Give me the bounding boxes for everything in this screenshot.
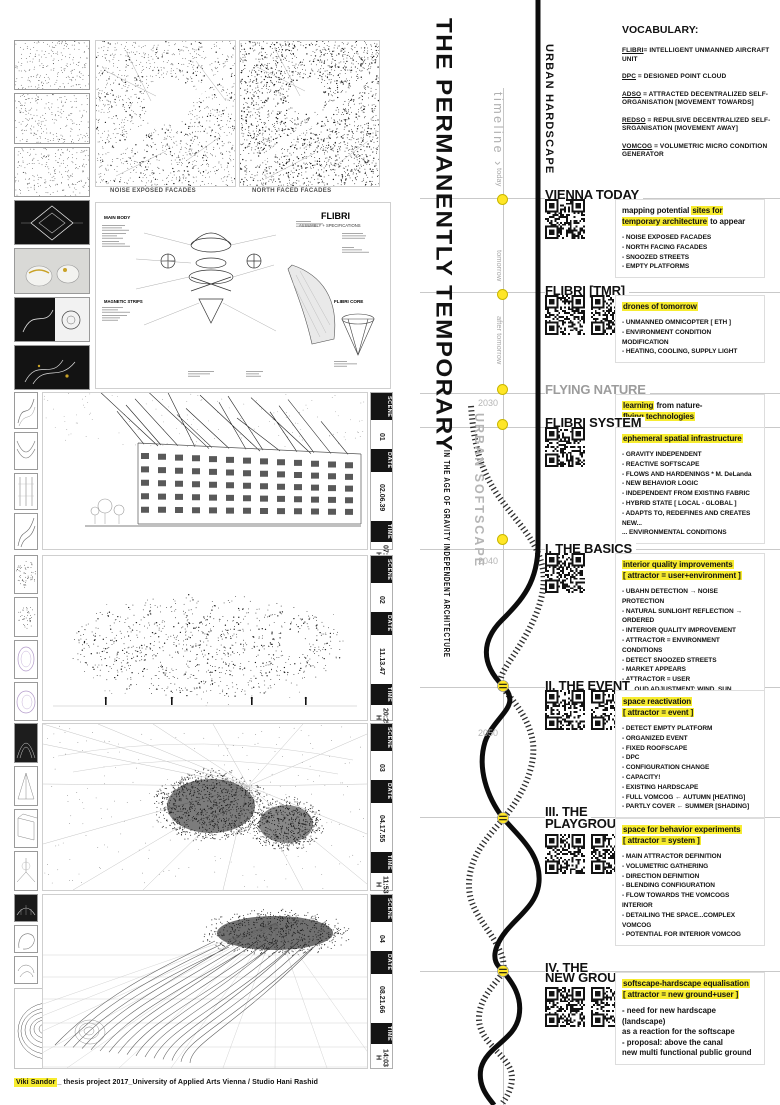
- section-intro-line: softscape-hardscape equalisation: [622, 978, 758, 989]
- urban-softscape-label: URBAN SOFTSCAPE: [472, 413, 486, 568]
- bullet-item: - ADAPTS TO, REDEFINES AND CREATES NEW..…: [622, 509, 758, 529]
- highlighted-text: [ attractor = new ground+user ]: [622, 990, 739, 999]
- scene-03-strip: SCENE 03 DATE 04.17.55 TIME 11:53 H: [370, 723, 393, 891]
- bullet-item: - NORTH FACING FACADES: [622, 243, 758, 253]
- vocabulary-term: DPC: [622, 73, 636, 80]
- vocabulary-term: VOMCOG: [622, 143, 652, 150]
- bullet-item: - BLENDING CONFIGURATION: [622, 881, 758, 891]
- thumbnail-greenhouse-photo: [14, 723, 38, 763]
- bullet-item: - REACTIVE SOFTSCAPE: [622, 460, 758, 470]
- section-text-box: space reactivation[ attractor = event ]-…: [615, 690, 765, 818]
- bullet-item: - EXISTING HARDSCAPE: [622, 783, 758, 793]
- scene-02-image: [43, 556, 367, 720]
- highlighted-text: [ attractor = system ]: [622, 836, 701, 845]
- bullet-item: - MAIN ATTRACTOR DEFINITION: [622, 852, 758, 862]
- section-flying-nature: FLYING NATURElearning from nature-flying…: [545, 381, 780, 399]
- bullet-item: - GRAVITY INDEPENDENT: [622, 450, 758, 460]
- section-paragraph: - need for new hardscape (landscape)as a…: [622, 1006, 758, 1059]
- year-2040: 2040: [466, 556, 498, 566]
- highlighted-text: ephemeral spatial infrastructure: [622, 434, 743, 443]
- time-label: TIME: [371, 852, 392, 873]
- bullet-item: ... ENVIRONMENTAL CONDITIONS: [622, 528, 758, 538]
- map-texture-image: [240, 41, 379, 186]
- time-value: 14:03 H: [375, 1044, 389, 1068]
- bullet-item: - MARKET APPEARS: [622, 665, 758, 675]
- section-qr-codes: [545, 427, 585, 467]
- vocabulary-definition: = ATTRACTED DECENTRALIZED SELF-ORGANISAT…: [622, 91, 768, 107]
- bullet-item: - INDEPENDENT FROM EXISTING FABRIC: [622, 489, 758, 499]
- highlighted-text: learning: [622, 401, 654, 410]
- vocabulary-entry: DPC = DESIGNED POINT CLOUD: [622, 73, 775, 82]
- bullet-item: - FLOW TOWARDS THE VOMCOGS INTERIOR: [622, 891, 758, 911]
- thumbnail-sketch: [14, 513, 38, 550]
- scene-04-thumbnails: [14, 894, 38, 984]
- bullet-item: - UNMANNED OMNICOPTER [ ETH ]: [622, 318, 758, 328]
- vocabulary-entry: ADSO = ATTRACTED DECENTRALIZED SELF-ORGA…: [622, 91, 775, 108]
- bullet-item: - CONFIGURATION CHANGE: [622, 763, 758, 773]
- bullet-item: - HYBRID STATE [ LOCAL - GLOBAL ]: [622, 499, 758, 509]
- section-text-box: space for behavior experiments[ attracto…: [615, 818, 765, 946]
- people-silhouettes: [105, 697, 307, 705]
- thumbnail-drone-render: [14, 200, 90, 245]
- section-intro-line: interior quality improvements: [622, 559, 758, 570]
- section-the-new-ground: IV. THENEW GROUNDsoftscape-hardscape equ…: [545, 959, 780, 977]
- thumbnail-sketch: [14, 432, 38, 469]
- bullet-item: - DIRECTION DEFINITION: [622, 872, 758, 882]
- section-text-box: mapping potential sites for temporary ar…: [615, 199, 765, 278]
- vocabulary-entries: FLIBRI= INTELLIGENT UNMANNED AIRCRAFT UN…: [622, 47, 775, 160]
- vocabulary-entry: VOMCOG = VOLUMETRIC MICRO CONDITION GENE…: [622, 143, 775, 160]
- section-bullet-list: - UNMANNED OMNICOPTER [ ETH ]- ENVIRONME…: [622, 318, 758, 357]
- credit-line: Viki Sandor_ thesis project 2017_Univers…: [14, 1079, 318, 1086]
- scene-01-image: [43, 393, 367, 549]
- scene-number: 02: [378, 583, 385, 612]
- timeline-axis-line: [503, 88, 504, 1105]
- thumbnail-sketch: [14, 473, 38, 510]
- thumbnail-bridge-photo: [14, 894, 38, 922]
- bullet-item: - NEW BEHAVIOR LOGIC: [622, 479, 758, 489]
- timeline-dot-2030: [497, 419, 508, 430]
- highlighted-text: [ attractor = event ]: [622, 708, 694, 717]
- map-label-right: NORTH FACED FACADES: [252, 188, 331, 194]
- bullet-item: - INTERIOR QUALITY IMPROVEMENT: [622, 626, 758, 636]
- timeline-dot-basics: [497, 534, 508, 545]
- bullet-item: - NATURAL SUNLIGHT REFLECTION → ORDERED: [622, 607, 758, 627]
- bullet-item: - HEATING, COOLING, SUPPLY LIGHT: [622, 347, 758, 357]
- scene-04-image: [43, 895, 367, 1068]
- paragraph-line: - proposal: above the canal: [622, 1038, 758, 1049]
- bullet-item: - DETECT SNOOZED STREETS: [622, 656, 758, 666]
- bullet-item: - ATTRACTOR = ENVIRONMENT CONDITIONS: [622, 636, 758, 656]
- date-label: DATE: [371, 951, 392, 974]
- scene-02-thumbnails: [14, 555, 38, 721]
- section-text-box: softscape-hardscape equalisation[ attrac…: [615, 972, 765, 1065]
- vocabulary-definition: = INTELLIGENT UNMANNED AIRCRAFT UNIT: [622, 47, 769, 63]
- thumbnail-map-sketch: [14, 93, 90, 143]
- paragraph-line: as a reaction for the softscape: [622, 1027, 758, 1038]
- section-vienna-today: VIENNA TODAYmapping potential sites for …: [545, 186, 780, 204]
- bullet-item: - ORGANIZED EVENT: [622, 734, 758, 744]
- section-bullet-list: - DETECT EMPTY PLATFORM- ORGANIZED EVENT…: [622, 724, 758, 812]
- scene-02-strip: SCENE 02 DATE 11.13.47 TIME 20:25 H: [370, 555, 393, 721]
- vocabulary-term: ADSO: [622, 91, 641, 98]
- credit-text: _ thesis project 2017_University of Appl…: [57, 1079, 318, 1086]
- author-name: Viki Sandor: [14, 1078, 57, 1087]
- diagram-label-main-body: MAIN BODY: [104, 215, 130, 220]
- scene-label: SCENE: [371, 393, 392, 420]
- qr-code: [545, 987, 585, 1027]
- bullet-item: - CAPACITY!: [622, 773, 758, 783]
- thumbnail-sketch: [14, 392, 38, 429]
- section-intro-line: [ attractor = system ]: [622, 835, 758, 846]
- thumbnail-pointcloud: [14, 555, 38, 594]
- scene-01-strip: SCENE 01 DATE 02.06.39 TIME 07:10 H: [370, 392, 393, 550]
- date-label: DATE: [371, 780, 392, 803]
- timeline-label-text: timeline: [491, 92, 505, 155]
- qr-code: [545, 690, 585, 730]
- bullet-item: - DPC: [622, 753, 758, 763]
- section-text-box: drones of tomorrow- UNMANNED OMNICOPTER …: [615, 295, 765, 363]
- vocabulary-definition: = DESIGNED POINT CLOUD: [636, 73, 726, 80]
- section-intro-line: ephemeral spatial infrastructure: [622, 433, 758, 444]
- map-label-left: NOISE EXPOSED FACADES: [110, 188, 196, 194]
- qr-code: [545, 834, 585, 874]
- date-label: DATE: [371, 449, 392, 472]
- highlighted-text: interior quality improvements: [622, 560, 734, 569]
- section-the-basics: I. THE BASICSinterior quality improvemen…: [545, 540, 780, 558]
- qr-code: [545, 295, 585, 335]
- section-the-playground: III. THEPLAYGROUNDspace for behavior exp…: [545, 803, 780, 821]
- vocabulary-block: VOCABULARY: FLIBRI= INTELLIGENT UNMANNED…: [622, 24, 775, 169]
- bullet-item: - FIXED ROOFSCAPE: [622, 744, 758, 754]
- date-value: 02.06.39: [378, 472, 385, 521]
- map-texture-image: [96, 41, 235, 186]
- highlighted-text: softscape-hardscape equalisation: [622, 979, 750, 988]
- thumbnail-wireframe: [14, 809, 38, 849]
- poster-subtitle: IN THE AGE OF GRAVITY INDEPENDENT ARCHIT…: [442, 450, 451, 658]
- section-qr-codes: [545, 553, 585, 593]
- scene-label: SCENE: [371, 895, 392, 922]
- scene-01-drawing: [42, 392, 368, 550]
- time-label: TIME: [371, 684, 392, 705]
- qr-code: [545, 427, 585, 467]
- thumbnail-contour-blob: [14, 640, 38, 679]
- bullet-item: - VOLUMETRIC GATHERING: [622, 862, 758, 872]
- bullet-item: - ENVIRONMENT CONDITION MODIFICATION: [622, 328, 758, 348]
- vocabulary-term: REDSO: [622, 117, 646, 124]
- timeline-dot-today: [497, 194, 508, 205]
- section-intro-line: [ attractor = event ]: [622, 707, 758, 718]
- bullet-item: - NOISE EXPOSED FACADES: [622, 233, 758, 243]
- thumbnail-map-sketch: [14, 147, 90, 197]
- exploded-drone-drawing: [161, 233, 261, 323]
- section-the-event: II. THE EVENTspace reactivation[ attract…: [545, 677, 780, 695]
- scene-label: SCENE: [371, 556, 392, 583]
- plain-text: from nature-: [654, 401, 702, 410]
- vocabulary-entry: REDSO = REPULSIVE DECENTRALIZED SELF-SRG…: [622, 117, 775, 134]
- timeline-dot-tomorrow: [497, 289, 508, 300]
- date-label: DATE: [371, 612, 392, 635]
- section-flibri-tmr: FLIBRI [TMR]drones of tomorrow- UNMANNED…: [545, 282, 780, 300]
- qr-code: [545, 199, 585, 239]
- thumbnail-contour-blob: [14, 682, 38, 721]
- section-qr-codes: [545, 199, 585, 239]
- urban-hardscape-line: [480, 0, 539, 1105]
- scene-03-thumbnails: [14, 723, 38, 891]
- paragraph-line: - need for new hardscape (landscape): [622, 1006, 758, 1027]
- scene-number: 04: [378, 922, 385, 951]
- diagram-title: FLIBRI: [321, 211, 350, 221]
- section-bullet-list: - NOISE EXPOSED FACADES- NORTH FACING FA…: [622, 233, 758, 272]
- section-intro-line: learning from nature-: [622, 400, 758, 411]
- thumbnail-wireframe: [14, 766, 38, 806]
- diagram-label-flibri-core: FLIBRI CORE: [334, 299, 363, 304]
- section-intro-line: space for behavior experiments: [622, 824, 758, 835]
- date-value: 04.17.55: [378, 803, 385, 852]
- flibri-photo-thumbnails: [14, 200, 90, 390]
- paragraph-line: new multi functional public ground: [622, 1048, 758, 1059]
- section-intro-line: mapping potential sites for temporary ar…: [622, 205, 758, 227]
- qr-code: [545, 553, 585, 593]
- vocabulary-heading: VOCABULARY:: [622, 24, 775, 36]
- thumbnail-map-sketch: [14, 40, 90, 90]
- bullet-item: - FLOWS AND HARDENINGS * M. DeLanda: [622, 470, 758, 480]
- scene-01-thumbnails: [14, 392, 38, 550]
- date-value: 08.21.66: [378, 974, 385, 1023]
- thumbnail-drone-shells: [14, 248, 90, 293]
- bullet-item: - DETECT EMPTY PLATFORM: [622, 724, 758, 734]
- year-2050: 2050: [466, 728, 498, 738]
- scene-number: 03: [378, 751, 385, 780]
- scene-label: SCENE: [371, 724, 392, 751]
- section-bullet-list: - GRAVITY INDEPENDENT- REACTIVE SOFTSCAP…: [622, 450, 758, 538]
- timeline-dot-after-tomorrow: [497, 384, 508, 395]
- bullet-item: - SNOOZED STREETS: [622, 253, 758, 263]
- map-thumbnails: [14, 40, 90, 197]
- section-intro-line: [ attractor = new ground+user ]: [622, 989, 758, 1000]
- section-flibri-system: FLIBRI SYSTEMephemeral spatial infrastru…: [545, 414, 780, 432]
- bullet-item: - UBAHN DETECTION → NOISE PROTECTION: [622, 587, 758, 607]
- highlighted-text: space for behavior experiments: [622, 825, 742, 834]
- bullet-item: - POTENTIAL FOR INTERIOR VOMCOG: [622, 930, 758, 940]
- scene-03-image: [43, 724, 367, 890]
- scene-03-drawing: [42, 723, 368, 891]
- time-label: TIME: [371, 521, 392, 542]
- bullet-item: - DETAILING THE SPACE...COMPLEX VOMCOG: [622, 911, 758, 931]
- thumbnail-drone-detail: [14, 297, 90, 342]
- time-label: TIME: [371, 1023, 392, 1044]
- tick-today: today: [495, 168, 504, 186]
- tick-after-tomorrow: after tomorrow: [495, 316, 504, 364]
- section-text-box: ephemeral spatial infrastructure- GRAVIT…: [615, 427, 765, 544]
- tick-tomorrow: tomorrow: [495, 250, 504, 281]
- urban-hardscape-label: URBAN HARDSCAPE: [543, 44, 555, 174]
- thumbnail-shell-sketch: [14, 925, 38, 953]
- section-intro-line: [ attractor = user+environment ]: [622, 570, 758, 581]
- highlighted-text: [ attractor = user+environment ]: [622, 571, 742, 580]
- flibri-assembly-diagram: FLIBRI ASSEMBLY + SPECIFICATIONS MAIN BO…: [95, 202, 391, 389]
- time-value: 11:53 H: [375, 873, 389, 894]
- assembly-diagram-image: FLIBRI ASSEMBLY + SPECIFICATIONS MAIN BO…: [96, 203, 390, 388]
- diagram-label-magnetic-strips: MAGNETIC STRIPS: [104, 299, 143, 304]
- vocabulary-term: FLIBRI: [622, 47, 644, 54]
- bullet-item: - EMPTY PLATFORMS: [622, 262, 758, 272]
- section-intro-line: drones of tomorrow: [622, 301, 758, 312]
- section-bullet-list: - MAIN ATTRACTOR DEFINITION- VOLUMETRIC …: [622, 852, 758, 940]
- timeline-arrow: ›: [491, 161, 505, 168]
- date-value: 11.13.47: [378, 635, 385, 684]
- highlighted-text: space reactivation: [622, 697, 692, 706]
- highlighted-text: drones of tomorrow: [622, 302, 698, 311]
- thumbnail-shell-sketch: [14, 956, 38, 984]
- scene-04-drawing: [42, 894, 368, 1069]
- vocabulary-entry: FLIBRI= INTELLIGENT UNMANNED AIRCRAFT UN…: [622, 47, 775, 64]
- poster-title: THE PERMANENTLY TEMPORARY: [430, 18, 456, 452]
- thesis-poster: THE PERMANENTLY TEMPORARY IN THE AGE OF …: [0, 0, 780, 1105]
- plain-text: mapping potential: [622, 206, 691, 215]
- plain-text: to appear: [708, 217, 745, 226]
- map-north-faced-facades: [239, 40, 380, 187]
- timeline-label: timeline ›: [491, 92, 505, 168]
- scene-number: 01: [378, 420, 385, 449]
- bullet-item: - FULL VOMCOG ← AUTUMN [HEATING]: [622, 793, 758, 803]
- scene-02-drawing: [42, 555, 368, 721]
- thumbnail-drone-wire: [14, 345, 90, 390]
- section-intro-line: space reactivation: [622, 696, 758, 707]
- scene-04-strip: SCENE 04 DATE 08.21.66 TIME 14:03 H: [370, 894, 393, 1069]
- map-noise-exposed-facades: [95, 40, 236, 187]
- thumbnail-wireframe: [14, 851, 38, 891]
- year-2030: 2030: [466, 398, 498, 408]
- thumbnail-pointcloud: [14, 597, 38, 636]
